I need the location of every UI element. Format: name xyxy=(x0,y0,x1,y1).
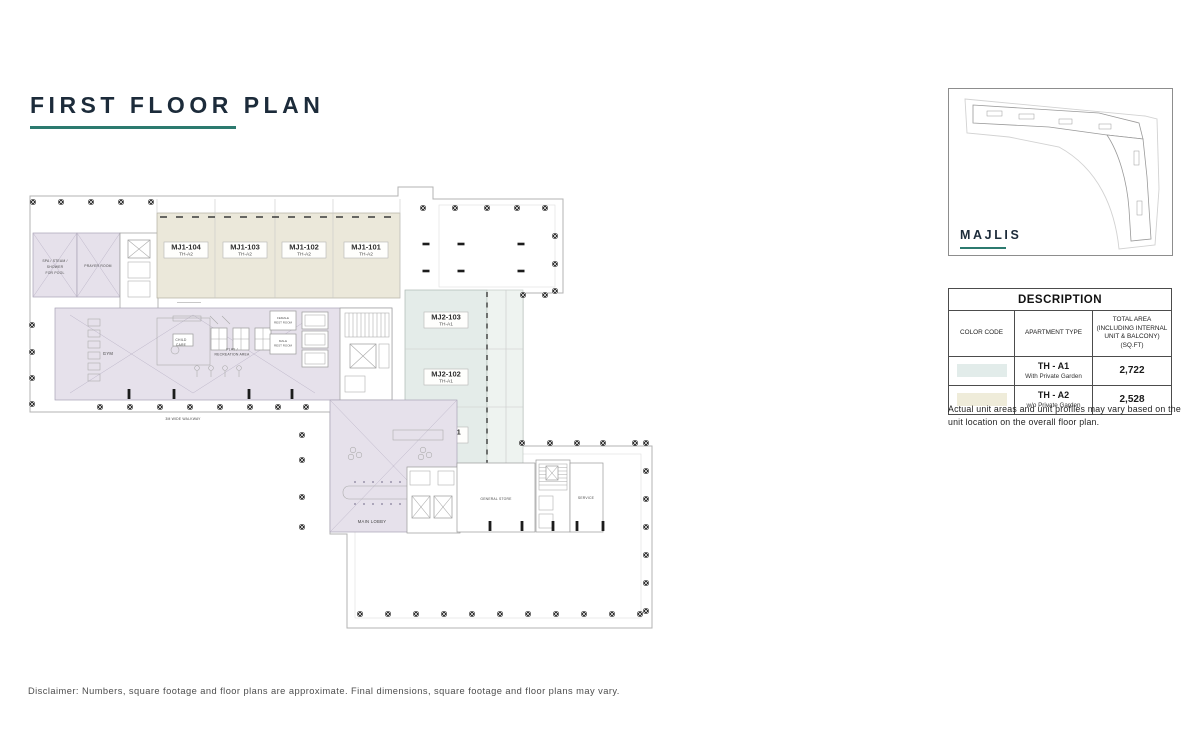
svg-text:CARE: CARE xyxy=(176,343,187,347)
svg-text:GENERAL STORE: GENERAL STORE xyxy=(480,497,512,501)
key-plan-label: MAJLIS xyxy=(960,228,1021,242)
svg-text:TH-A2: TH-A2 xyxy=(238,252,252,258)
col-header-color-code: COLOR CODE xyxy=(949,311,1015,356)
prayer-room: PRAYER ROOM xyxy=(77,233,120,297)
table-title: DESCRIPTION xyxy=(949,289,1171,311)
color-swatch-th-a1 xyxy=(957,364,1007,377)
svg-text:FOR POOL: FOR POOL xyxy=(45,271,64,275)
svg-text:REST ROOM: REST ROOM xyxy=(274,321,293,325)
unit-mj1-103: MJ1-103 TH-A2 xyxy=(223,242,267,258)
description-table: DESCRIPTION COLOR CODE APARTMENT TYPE TO… xyxy=(948,288,1172,415)
svg-text:REST ROOM: REST ROOM xyxy=(274,344,293,348)
page: FIRST FLOOR PLAN SPA / STEAM / SHOWER FO… xyxy=(0,0,1200,750)
apartment-type: TH - A1 xyxy=(1038,362,1069,372)
svg-text:MJ1-104: MJ1-104 xyxy=(171,243,201,252)
title-underline xyxy=(30,126,236,129)
svg-text:MJ1-102: MJ1-102 xyxy=(289,243,319,252)
svg-text:MAIN LOBBY: MAIN LOBBY xyxy=(358,519,387,524)
svg-text:GYM: GYM xyxy=(103,351,114,356)
svg-text:MJ1-101: MJ1-101 xyxy=(351,243,381,252)
table-header-row: COLOR CODE APARTMENT TYPE TOTAL AREA (IN… xyxy=(949,311,1171,357)
svg-text:TH-A1: TH-A1 xyxy=(439,322,453,328)
apartment-subtype: With Private Garden xyxy=(1025,373,1082,380)
unit-mj2-102: MJ2-102 TH-A1 xyxy=(424,369,468,385)
svg-text:RECREATION AREA: RECREATION AREA xyxy=(215,353,251,357)
service-room: SERVICE xyxy=(570,463,603,532)
svg-text:PRAYER ROOM: PRAYER ROOM xyxy=(84,264,111,268)
svg-text:TH-A2: TH-A2 xyxy=(359,252,373,258)
unit-mj1-104: MJ1-104 TH-A2 xyxy=(164,242,208,258)
corridor-dimension-text xyxy=(177,302,201,303)
svg-text:SERVICE: SERVICE xyxy=(578,496,595,500)
stair-core-2 xyxy=(407,467,460,533)
svg-text:TH-A2: TH-A2 xyxy=(297,252,311,258)
floor-plan-drawing: SPA / STEAM / SHOWER FOR POOL PRAYER ROO… xyxy=(25,178,665,648)
walkway-label: 3M WIDE WALKWAY xyxy=(165,417,201,421)
svg-text:MJ2-103: MJ2-103 xyxy=(431,313,461,322)
table-row-th-a1: TH - A1 With Private Garden 2,722 xyxy=(949,357,1171,386)
key-plan-box: MAJLIS xyxy=(948,88,1173,256)
spa-room: SPA / STEAM / SHOWER FOR POOL xyxy=(33,233,77,297)
stair-core-1 xyxy=(340,308,392,400)
total-area: 2,722 xyxy=(1119,365,1144,376)
male-rest-room: MALE REST ROOM xyxy=(270,334,296,354)
key-plan-underline xyxy=(960,247,1006,249)
disclaimer: Disclaimer: Numbers, square footage and … xyxy=(28,686,620,696)
unit-mj1-101: MJ1-101 TH-A2 xyxy=(344,242,388,258)
col-header-apartment-type: APARTMENT TYPE xyxy=(1015,311,1093,356)
mj1-unit-block: MJ1-104 TH-A2 MJ1-103 TH-A2 MJ1-102 TH-A… xyxy=(157,199,400,298)
apartment-type: TH - A2 xyxy=(1038,391,1069,401)
svg-text:FEMALE: FEMALE xyxy=(277,316,289,320)
svg-text:MJ1-103: MJ1-103 xyxy=(230,243,260,252)
elevator-core-1 xyxy=(120,233,158,310)
area-note: Actual unit areas and unit profiles may … xyxy=(948,403,1184,429)
svg-text:PLAY /: PLAY / xyxy=(226,348,237,352)
unit-mj1-102: MJ1-102 TH-A2 xyxy=(282,242,326,258)
svg-text:SHOWER: SHOWER xyxy=(47,265,64,269)
svg-text:MJ2-102: MJ2-102 xyxy=(431,370,461,379)
female-rest-room: FEMALE REST ROOM xyxy=(270,311,296,330)
svg-text:TH-A1: TH-A1 xyxy=(439,379,453,385)
svg-text:MALE: MALE xyxy=(279,339,287,343)
unit-mj2-103: MJ2-103 TH-A1 xyxy=(424,312,468,328)
col-header-total-area: TOTAL AREA (INCLUDING INTERNAL UNIT & BA… xyxy=(1093,311,1171,356)
lift-bank xyxy=(302,312,328,367)
page-title: FIRST FLOOR PLAN xyxy=(30,92,324,119)
svg-text:SPA / STEAM /: SPA / STEAM / xyxy=(42,259,67,263)
svg-text:CHILD: CHILD xyxy=(175,338,187,342)
svg-text:TH-A2: TH-A2 xyxy=(179,252,193,258)
